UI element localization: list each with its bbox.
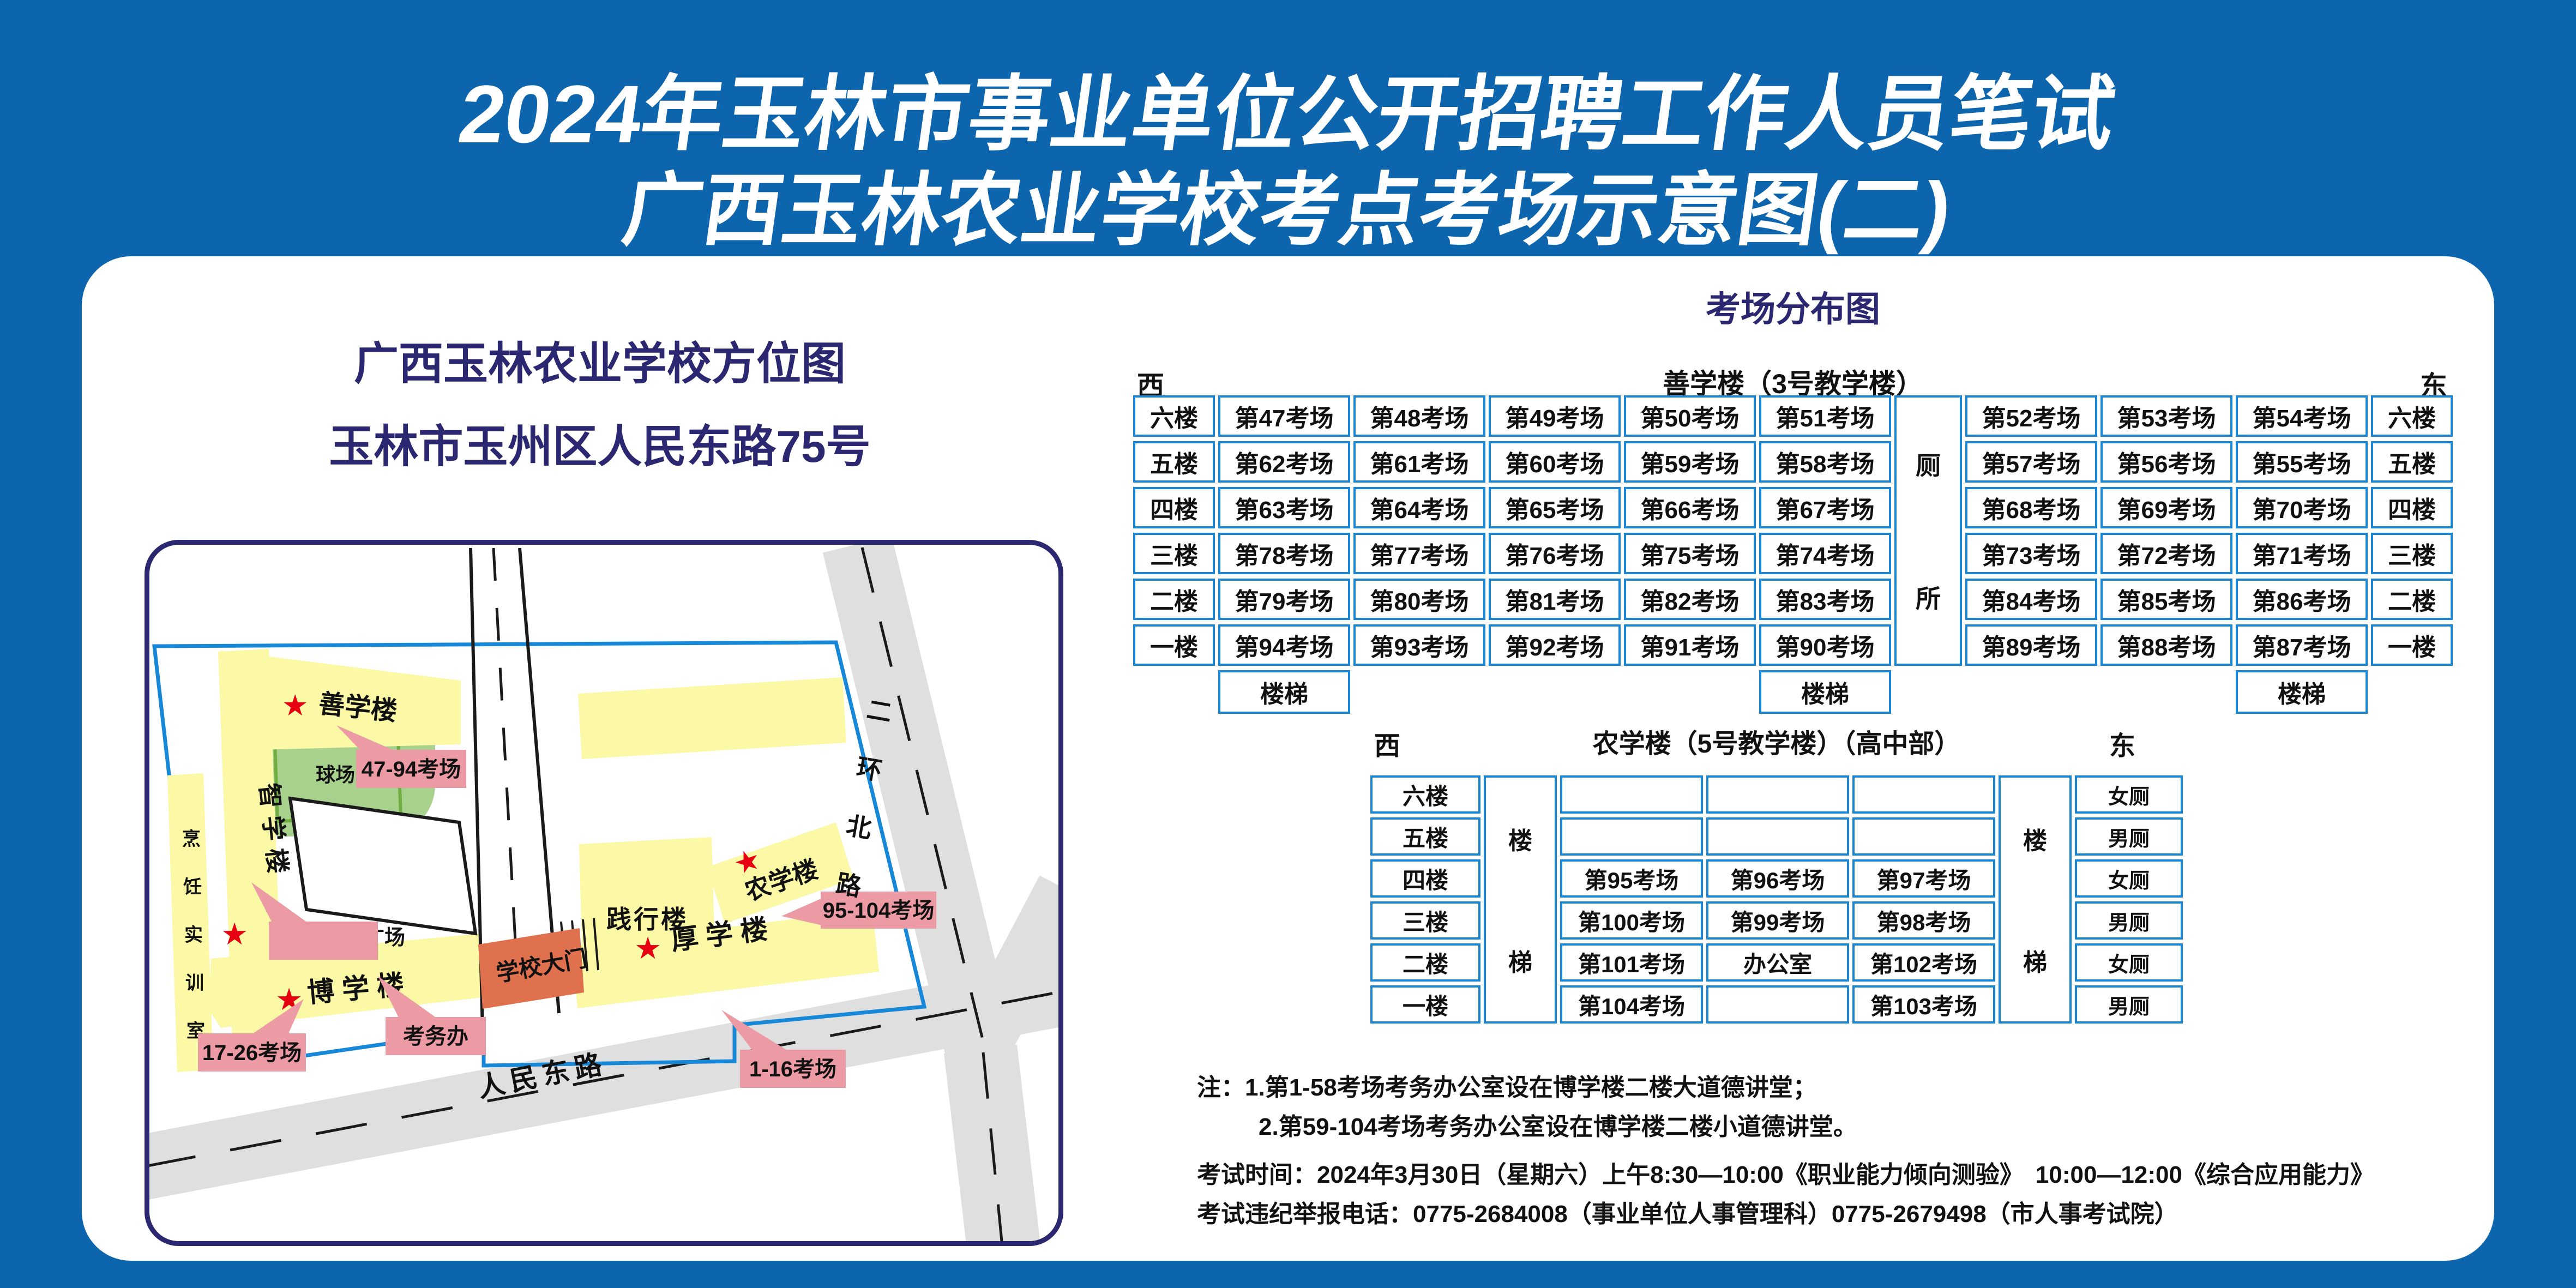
exam-room-cell: 第47考场	[1218, 395, 1350, 437]
exam-room-cell: 第91考场	[1624, 624, 1756, 666]
shanxue-table: 六楼 第47考场 第48考场 第49考场 第50考场 第51考场 厕 所 第52…	[1133, 395, 2453, 714]
toilet-char: 厕	[1916, 446, 1941, 482]
exam-room-cell: 第71考场	[2236, 533, 2368, 574]
floor-label: 四楼	[2371, 487, 2453, 528]
exam-room-cell: 第67考场	[1759, 487, 1891, 528]
exam-room-cell: 第77考场	[1353, 533, 1485, 574]
exam-room-cell: 第97考场	[1852, 859, 1995, 898]
svg-text:环: 环	[854, 753, 884, 785]
svg-text:烹: 烹	[182, 829, 201, 850]
svg-text:95-104考场: 95-104考场	[823, 899, 935, 923]
exam-room-cell: 第79考场	[1218, 579, 1350, 620]
star-icon: ★	[221, 917, 248, 951]
campus-map: 球场 善学楼 ★ 智学楼 烹 饪 实 训 室 阳光广场 践行楼 农学楼 ★ 厚 …	[145, 540, 1063, 1246]
exam-room-cell: 第74考场	[1759, 533, 1891, 574]
exam-room-cell	[1706, 817, 1849, 856]
floor-label: 五楼	[1133, 441, 1215, 483]
toilet-cell: 女厕	[2075, 775, 2183, 814]
floor-label: 六楼	[2371, 395, 2453, 437]
exam-room-cell: 第93考场	[1353, 624, 1485, 666]
exam-room-cell: 第64考场	[1353, 487, 1485, 528]
exam-room-cell: 第82考场	[1624, 579, 1756, 620]
exam-room-cell	[1560, 817, 1703, 856]
exam-room-cell: 第73考场	[1965, 533, 2097, 574]
exam-room-cell: 第86考场	[2236, 579, 2368, 620]
exam-room-cell: 第99考场	[1706, 901, 1849, 940]
exam-room-cell	[1706, 775, 1849, 814]
floor-label: 四楼	[1133, 487, 1215, 528]
toilet-cell: 男厕	[2075, 901, 2183, 940]
exam-room-cell: 第102考场	[1852, 943, 1995, 982]
svg-text:47-94考场: 47-94考场	[362, 757, 461, 781]
floor-label: 三楼	[1370, 901, 1480, 940]
exam-room-cell: 第101考场	[1560, 943, 1703, 982]
stairs-cell: 楼梯	[1759, 670, 1891, 714]
floor-label: 一楼	[1133, 624, 1215, 666]
exam-room-cell: 第48考场	[1353, 395, 1485, 437]
svg-text:1-16考场: 1-16考场	[749, 1057, 836, 1081]
stairs-char: 梯	[2023, 943, 2047, 978]
exam-room-cell: 第100考场	[1560, 901, 1703, 940]
exam-room-cell: 第63考场	[1218, 487, 1350, 528]
exam-room-cell: 第52考场	[1965, 395, 2097, 437]
note-line1: 注：1.第1-58考场考务办公室设在博学楼二楼大道德讲堂；	[1197, 1068, 1817, 1103]
note-report-phone: 考试违纪举报电话：0775-2684008（事业单位人事管理科）0775-267…	[1197, 1194, 2178, 1229]
exam-room-cell: 第92考场	[1489, 624, 1621, 666]
exam-room-cell: 第76考场	[1489, 533, 1621, 574]
stairs-cell: 楼梯	[2236, 670, 2368, 714]
exam-room-cell: 第98考场	[1852, 901, 1995, 940]
map-title-line1: 广西玉林农业学校方位图	[136, 327, 1063, 392]
stairs-char: 梯	[1508, 943, 1532, 978]
exam-room-cell: 第53考场	[2100, 395, 2232, 437]
exam-room-cell: 第75考场	[1624, 533, 1756, 574]
exam-room-cell: 第68考场	[1965, 487, 2097, 528]
stairs-cell: 楼梯	[1218, 670, 1350, 714]
exam-room-cell: 第84考场	[1965, 579, 2097, 620]
exam-room-cell: 第54考场	[2236, 395, 2368, 437]
exam-room-cell: 第85考场	[2100, 579, 2232, 620]
floor-label: 二楼	[1133, 579, 1215, 620]
exam-room-cell: 第103考场	[1852, 985, 1995, 1024]
svg-text:考务办: 考务办	[403, 1025, 468, 1049]
exam-room-cell: 第89考场	[1965, 624, 2097, 666]
exam-room-cell: 第88考场	[2100, 624, 2232, 666]
exam-room-cell: 第72考场	[2100, 533, 2232, 574]
exam-room-cell: 第50考场	[1624, 395, 1756, 437]
exam-room-cell: 第61考场	[1353, 441, 1485, 483]
floor-label: 二楼	[2371, 579, 2453, 620]
exam-room-cell: 第56考场	[2100, 441, 2232, 483]
floor-label: 三楼	[2371, 533, 2453, 574]
toilet-cell: 厕 所	[1894, 395, 1962, 666]
exam-room-cell: 第49考场	[1489, 395, 1621, 437]
floor-label: 三楼	[1133, 533, 1215, 574]
exam-room-cell: 第55考场	[2236, 441, 2368, 483]
toilet-cell: 男厕	[2075, 985, 2183, 1024]
floor-label: 一楼	[1370, 985, 1480, 1024]
exam-room-cell: 第62考场	[1218, 441, 1350, 483]
exam-room-cell: 第80考场	[1353, 579, 1485, 620]
map-title-line2: 玉林市玉州区人民东路75号	[136, 410, 1063, 475]
svg-text:训: 训	[185, 973, 204, 994]
exam-room-cell: 第90考场	[1759, 624, 1891, 666]
toilet-cell: 男厕	[2075, 817, 2183, 856]
label-qiuchang: 球场	[316, 763, 355, 786]
exam-room-cell: 第87考场	[2236, 624, 2368, 666]
toilet-cell: 女厕	[2075, 859, 2183, 898]
svg-text:二: 二	[865, 695, 894, 727]
floor-label: 一楼	[2371, 624, 2453, 666]
exam-room-cell: 第57考场	[1965, 441, 2097, 483]
floor-label: 六楼	[1133, 395, 1215, 437]
floor-label: 五楼	[2371, 441, 2453, 483]
exam-room-cell: 第58考场	[1759, 441, 1891, 483]
floor-label: 二楼	[1370, 943, 1480, 982]
exam-room-cell	[1706, 985, 1849, 1024]
floor-label: 五楼	[1370, 817, 1480, 856]
exam-room-cell: 第81考场	[1489, 579, 1621, 620]
nongxue-building-label: 农学楼（5号教学楼）（高中部）	[1370, 722, 2183, 760]
exam-room-cell: 办公室	[1706, 943, 1849, 982]
poster-canvas: 2024年玉林市事业单位公开招聘工作人员笔试 广西玉林农业学校考点考场示意图(二…	[0, 0, 2576, 1288]
exam-room-cell: 第60考场	[1489, 441, 1621, 483]
star-icon: ★	[282, 689, 308, 722]
exam-room-cell: 第95考场	[1560, 859, 1703, 898]
exam-room-cell: 第104考场	[1560, 985, 1703, 1024]
svg-text:17-26考场: 17-26考场	[202, 1041, 302, 1065]
exam-room-cell: 第69考场	[2100, 487, 2232, 528]
exam-room-cell: 第70考场	[2236, 487, 2368, 528]
exam-room-cell: 第83考场	[1759, 579, 1891, 620]
nongxue-east-label: 东	[2109, 724, 2135, 762]
svg-text:北: 北	[844, 811, 874, 843]
exam-room-cell	[1852, 817, 1995, 856]
toilet-char: 所	[1916, 579, 1941, 615]
floor-label: 四楼	[1370, 859, 1480, 898]
exam-room-cell: 第94考场	[1218, 624, 1350, 666]
note-exam-time: 考试时间：2024年3月30日（星期六）上午8:30—10:00《职业能力倾向测…	[1197, 1155, 2374, 1190]
stairs-char: 楼	[2023, 821, 2047, 856]
svg-text:饪: 饪	[183, 877, 202, 898]
distribution-title: 考场分布图	[1613, 281, 1973, 332]
star-icon: ★	[634, 931, 661, 965]
exam-room-cell: 第65考场	[1489, 487, 1621, 528]
exam-room-cell: 第51考场	[1759, 395, 1891, 437]
note-line2: 2.第59-104考场考务办公室设在博学楼二楼小道德讲堂。	[1259, 1107, 1857, 1142]
exam-room-cell: 第78考场	[1218, 533, 1350, 574]
page-title-line2: 广西玉林农业学校考点考场示意图(二)	[0, 146, 2576, 261]
exam-room-cell: 第66考场	[1624, 487, 1756, 528]
toilet-cell: 女厕	[2075, 943, 2183, 982]
stairs-char: 楼	[1508, 821, 1532, 856]
exam-room-cell: 第96考场	[1706, 859, 1849, 898]
exam-room-cell: 第59考场	[1624, 441, 1756, 483]
nongxue-table: 六楼 五楼 四楼 三楼 二楼 一楼 楼 梯 第95考场 第96考场 第97考场 …	[1370, 775, 2183, 1024]
stairs-cell: 楼 梯	[1484, 775, 1557, 1024]
svg-text:实: 实	[184, 925, 203, 946]
stairs-cell: 楼 梯	[1999, 775, 2072, 1024]
exam-room-cell	[1852, 775, 1995, 814]
floor-label: 六楼	[1370, 775, 1480, 814]
exam-room-cell	[1560, 775, 1703, 814]
